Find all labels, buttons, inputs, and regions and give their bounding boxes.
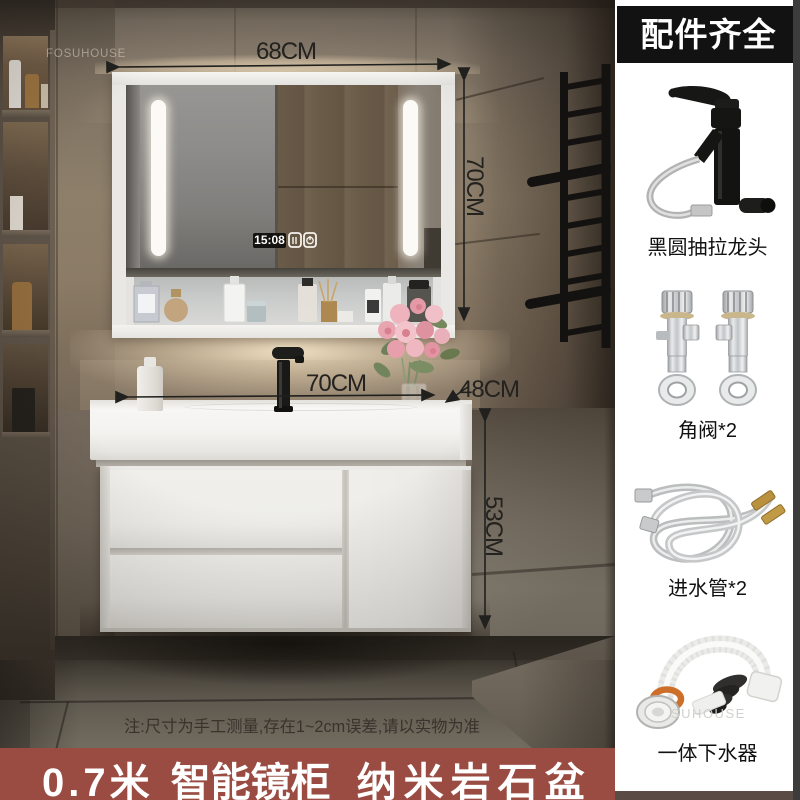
svg-text:SUHOUSE: SUHOUSE (671, 706, 746, 721)
